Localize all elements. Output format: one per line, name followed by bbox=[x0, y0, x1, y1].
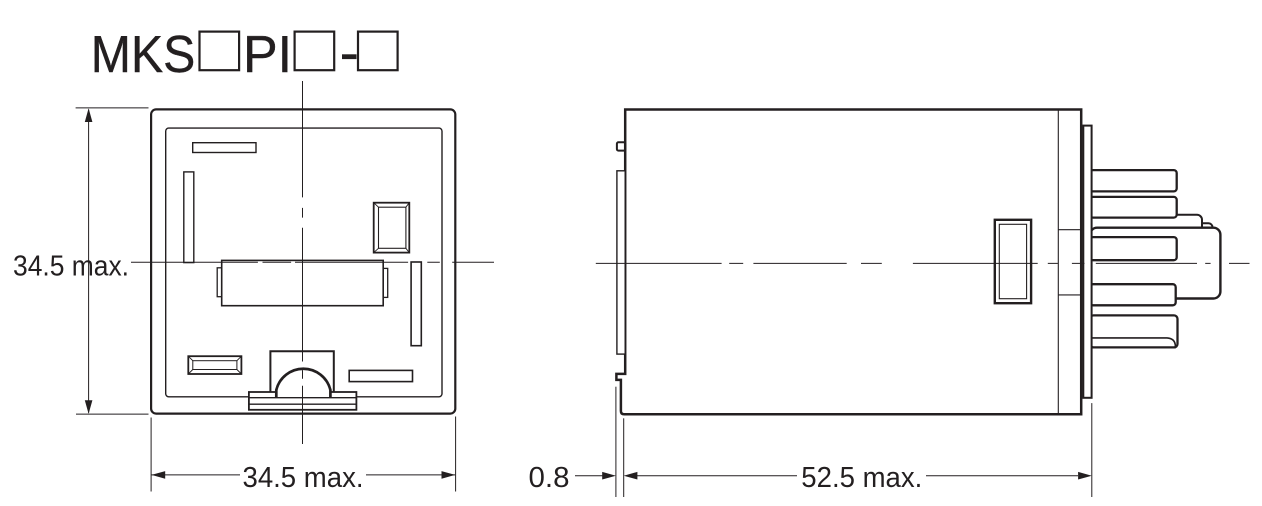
svg-text:34.5 max.: 34.5 max. bbox=[243, 462, 364, 494]
svg-text:52.5 max.: 52.5 max. bbox=[801, 462, 922, 494]
svg-text:0.8: 0.8 bbox=[529, 462, 570, 494]
svg-text:MKS: MKS bbox=[91, 26, 196, 84]
svg-text:34.5 max.: 34.5 max. bbox=[13, 250, 129, 282]
svg-text:PI: PI bbox=[243, 26, 292, 84]
